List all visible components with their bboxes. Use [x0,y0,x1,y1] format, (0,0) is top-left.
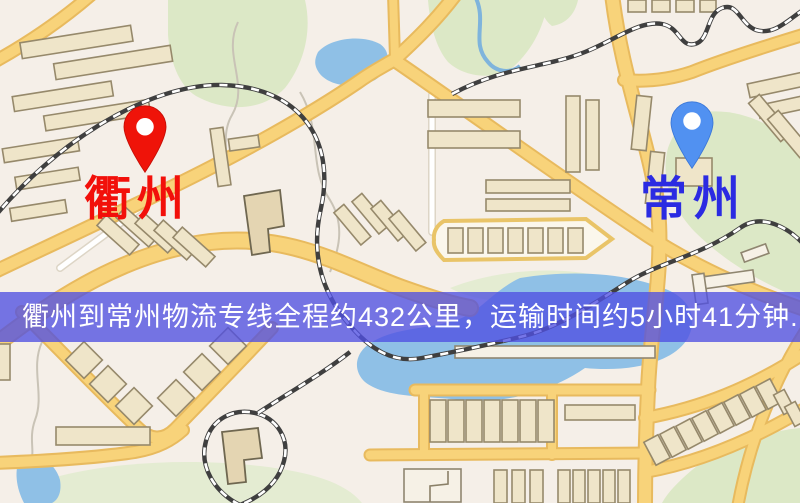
origin-city-label: 衢州 [84,177,190,224]
route-info-banner: 衢州到常州物流专线全程约432公里，运输时间约5小时41分钟. [0,292,800,342]
blue-pin-icon [665,100,719,170]
origin-pin[interactable] [118,104,172,174]
destination-city-label: 常州 [640,177,746,224]
map-canvas[interactable] [0,0,800,503]
red-pin-icon [118,104,172,174]
map-viewport[interactable]: 衢州 常州 衢州到常州物流专线全程约432公里，运输时间约5小时41分钟. [0,0,800,503]
destination-pin[interactable] [665,100,719,170]
route-info-text: 衢州到常州物流专线全程约432公里，运输时间约5小时41分钟. [22,302,799,332]
